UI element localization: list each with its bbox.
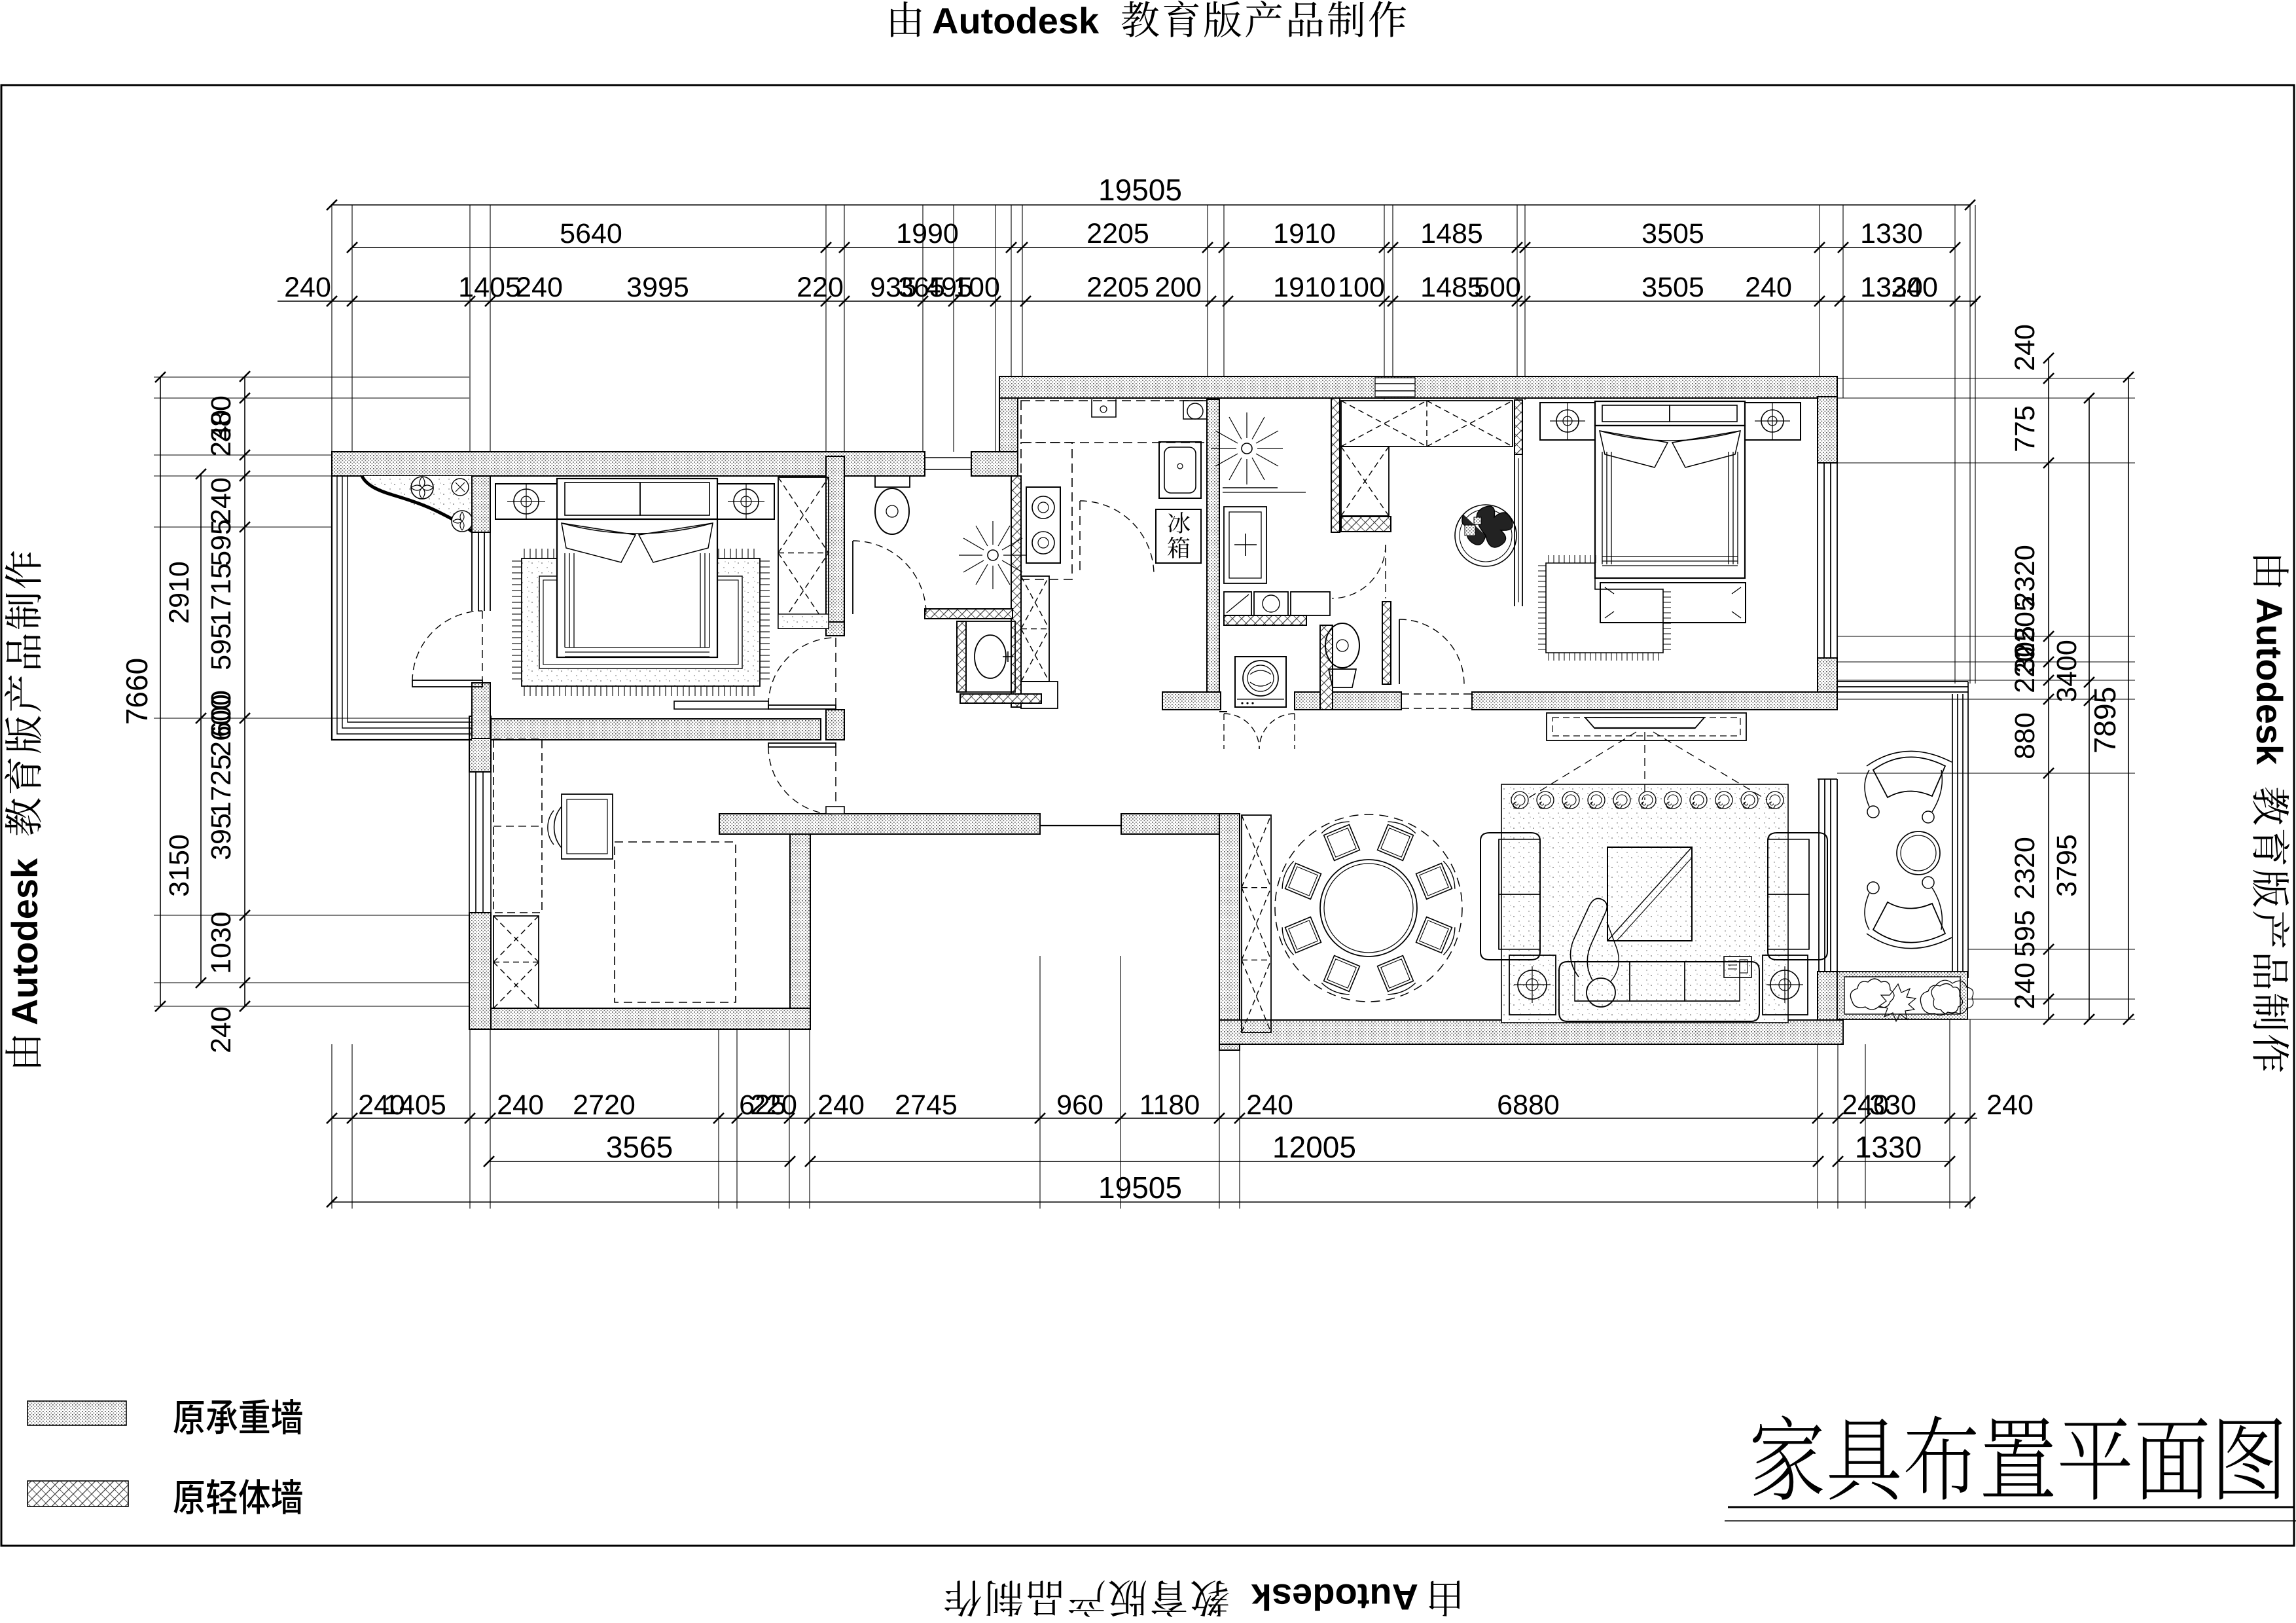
- svg-text:Autodesk: Autodesk: [932, 0, 1100, 41]
- svg-text:2720: 2720: [573, 1089, 636, 1121]
- svg-text:100: 100: [1338, 272, 1385, 303]
- svg-text:100: 100: [953, 272, 1000, 303]
- svg-text:500: 500: [1474, 272, 1521, 303]
- svg-text:220: 220: [2009, 646, 2041, 693]
- svg-text:2205: 2205: [1086, 272, 1149, 303]
- svg-text:775: 775: [2009, 405, 2041, 452]
- svg-text:Autodesk: Autodesk: [4, 858, 45, 1025]
- svg-text:240: 240: [2009, 324, 2041, 371]
- svg-text:1405: 1405: [458, 272, 521, 303]
- svg-text:7895: 7895: [2088, 687, 2122, 754]
- svg-text:19505: 19505: [1098, 1171, 1182, 1205]
- svg-text:240: 240: [206, 1006, 237, 1053]
- svg-text:240: 240: [206, 410, 237, 457]
- svg-text:2910: 2910: [164, 561, 195, 624]
- svg-text:1330: 1330: [1855, 1130, 1922, 1164]
- svg-text:5640: 5640: [560, 218, 622, 249]
- svg-text:1330: 1330: [1860, 218, 1923, 249]
- svg-text:3505: 3505: [1641, 272, 1704, 303]
- svg-text:2745: 2745: [895, 1089, 958, 1121]
- svg-text:7660: 7660: [120, 658, 154, 725]
- svg-text:200: 200: [1155, 272, 1202, 303]
- svg-text:2600: 2600: [206, 694, 237, 757]
- svg-text:2205: 2205: [1086, 218, 1149, 249]
- svg-text:1910: 1910: [1273, 218, 1336, 249]
- svg-text:240: 240: [206, 477, 237, 524]
- svg-text:1725: 1725: [206, 754, 237, 817]
- svg-text:Autodesk: Autodesk: [2249, 598, 2290, 765]
- svg-text:1405: 1405: [384, 1089, 446, 1121]
- svg-text:395: 395: [206, 813, 237, 860]
- svg-text:240: 240: [1745, 272, 1792, 303]
- svg-text:3565: 3565: [606, 1130, 673, 1164]
- svg-text:1990: 1990: [896, 218, 959, 249]
- svg-text:595: 595: [2009, 910, 2041, 957]
- svg-text:2320: 2320: [2009, 837, 2041, 900]
- svg-text:240: 240: [1891, 272, 1938, 303]
- svg-text:1180: 1180: [1139, 1089, 1200, 1121]
- svg-text:595: 595: [206, 519, 237, 566]
- svg-text:595: 595: [206, 623, 237, 670]
- svg-text:12005: 12005: [1272, 1130, 1356, 1164]
- svg-text:240: 240: [1246, 1089, 1293, 1121]
- svg-text:330: 330: [1869, 1089, 1916, 1121]
- svg-text:240: 240: [284, 272, 331, 303]
- svg-text:3400: 3400: [2051, 640, 2083, 702]
- svg-text:3505: 3505: [1641, 218, 1704, 249]
- svg-text:1715: 1715: [206, 563, 237, 626]
- svg-text:3150: 3150: [164, 834, 195, 897]
- svg-text:19505: 19505: [1098, 173, 1182, 207]
- svg-text:240: 240: [817, 1089, 865, 1121]
- svg-text:Autodesk: Autodesk: [1251, 1577, 1418, 1618]
- svg-text:240: 240: [516, 272, 563, 303]
- svg-text:1030: 1030: [206, 911, 237, 974]
- svg-text:960: 960: [1056, 1089, 1103, 1121]
- svg-text:220: 220: [750, 1089, 797, 1121]
- svg-text:1910: 1910: [1273, 272, 1336, 303]
- svg-text:220: 220: [797, 272, 844, 303]
- svg-text:3995: 3995: [626, 272, 689, 303]
- svg-text:880: 880: [2009, 712, 2041, 759]
- svg-text:3795: 3795: [2051, 834, 2083, 897]
- svg-text:6880: 6880: [1497, 1089, 1560, 1121]
- svg-text:240: 240: [497, 1089, 544, 1121]
- svg-text:1485: 1485: [1420, 218, 1483, 249]
- svg-text:240: 240: [1986, 1089, 2034, 1121]
- svg-text:240: 240: [2009, 962, 2041, 1010]
